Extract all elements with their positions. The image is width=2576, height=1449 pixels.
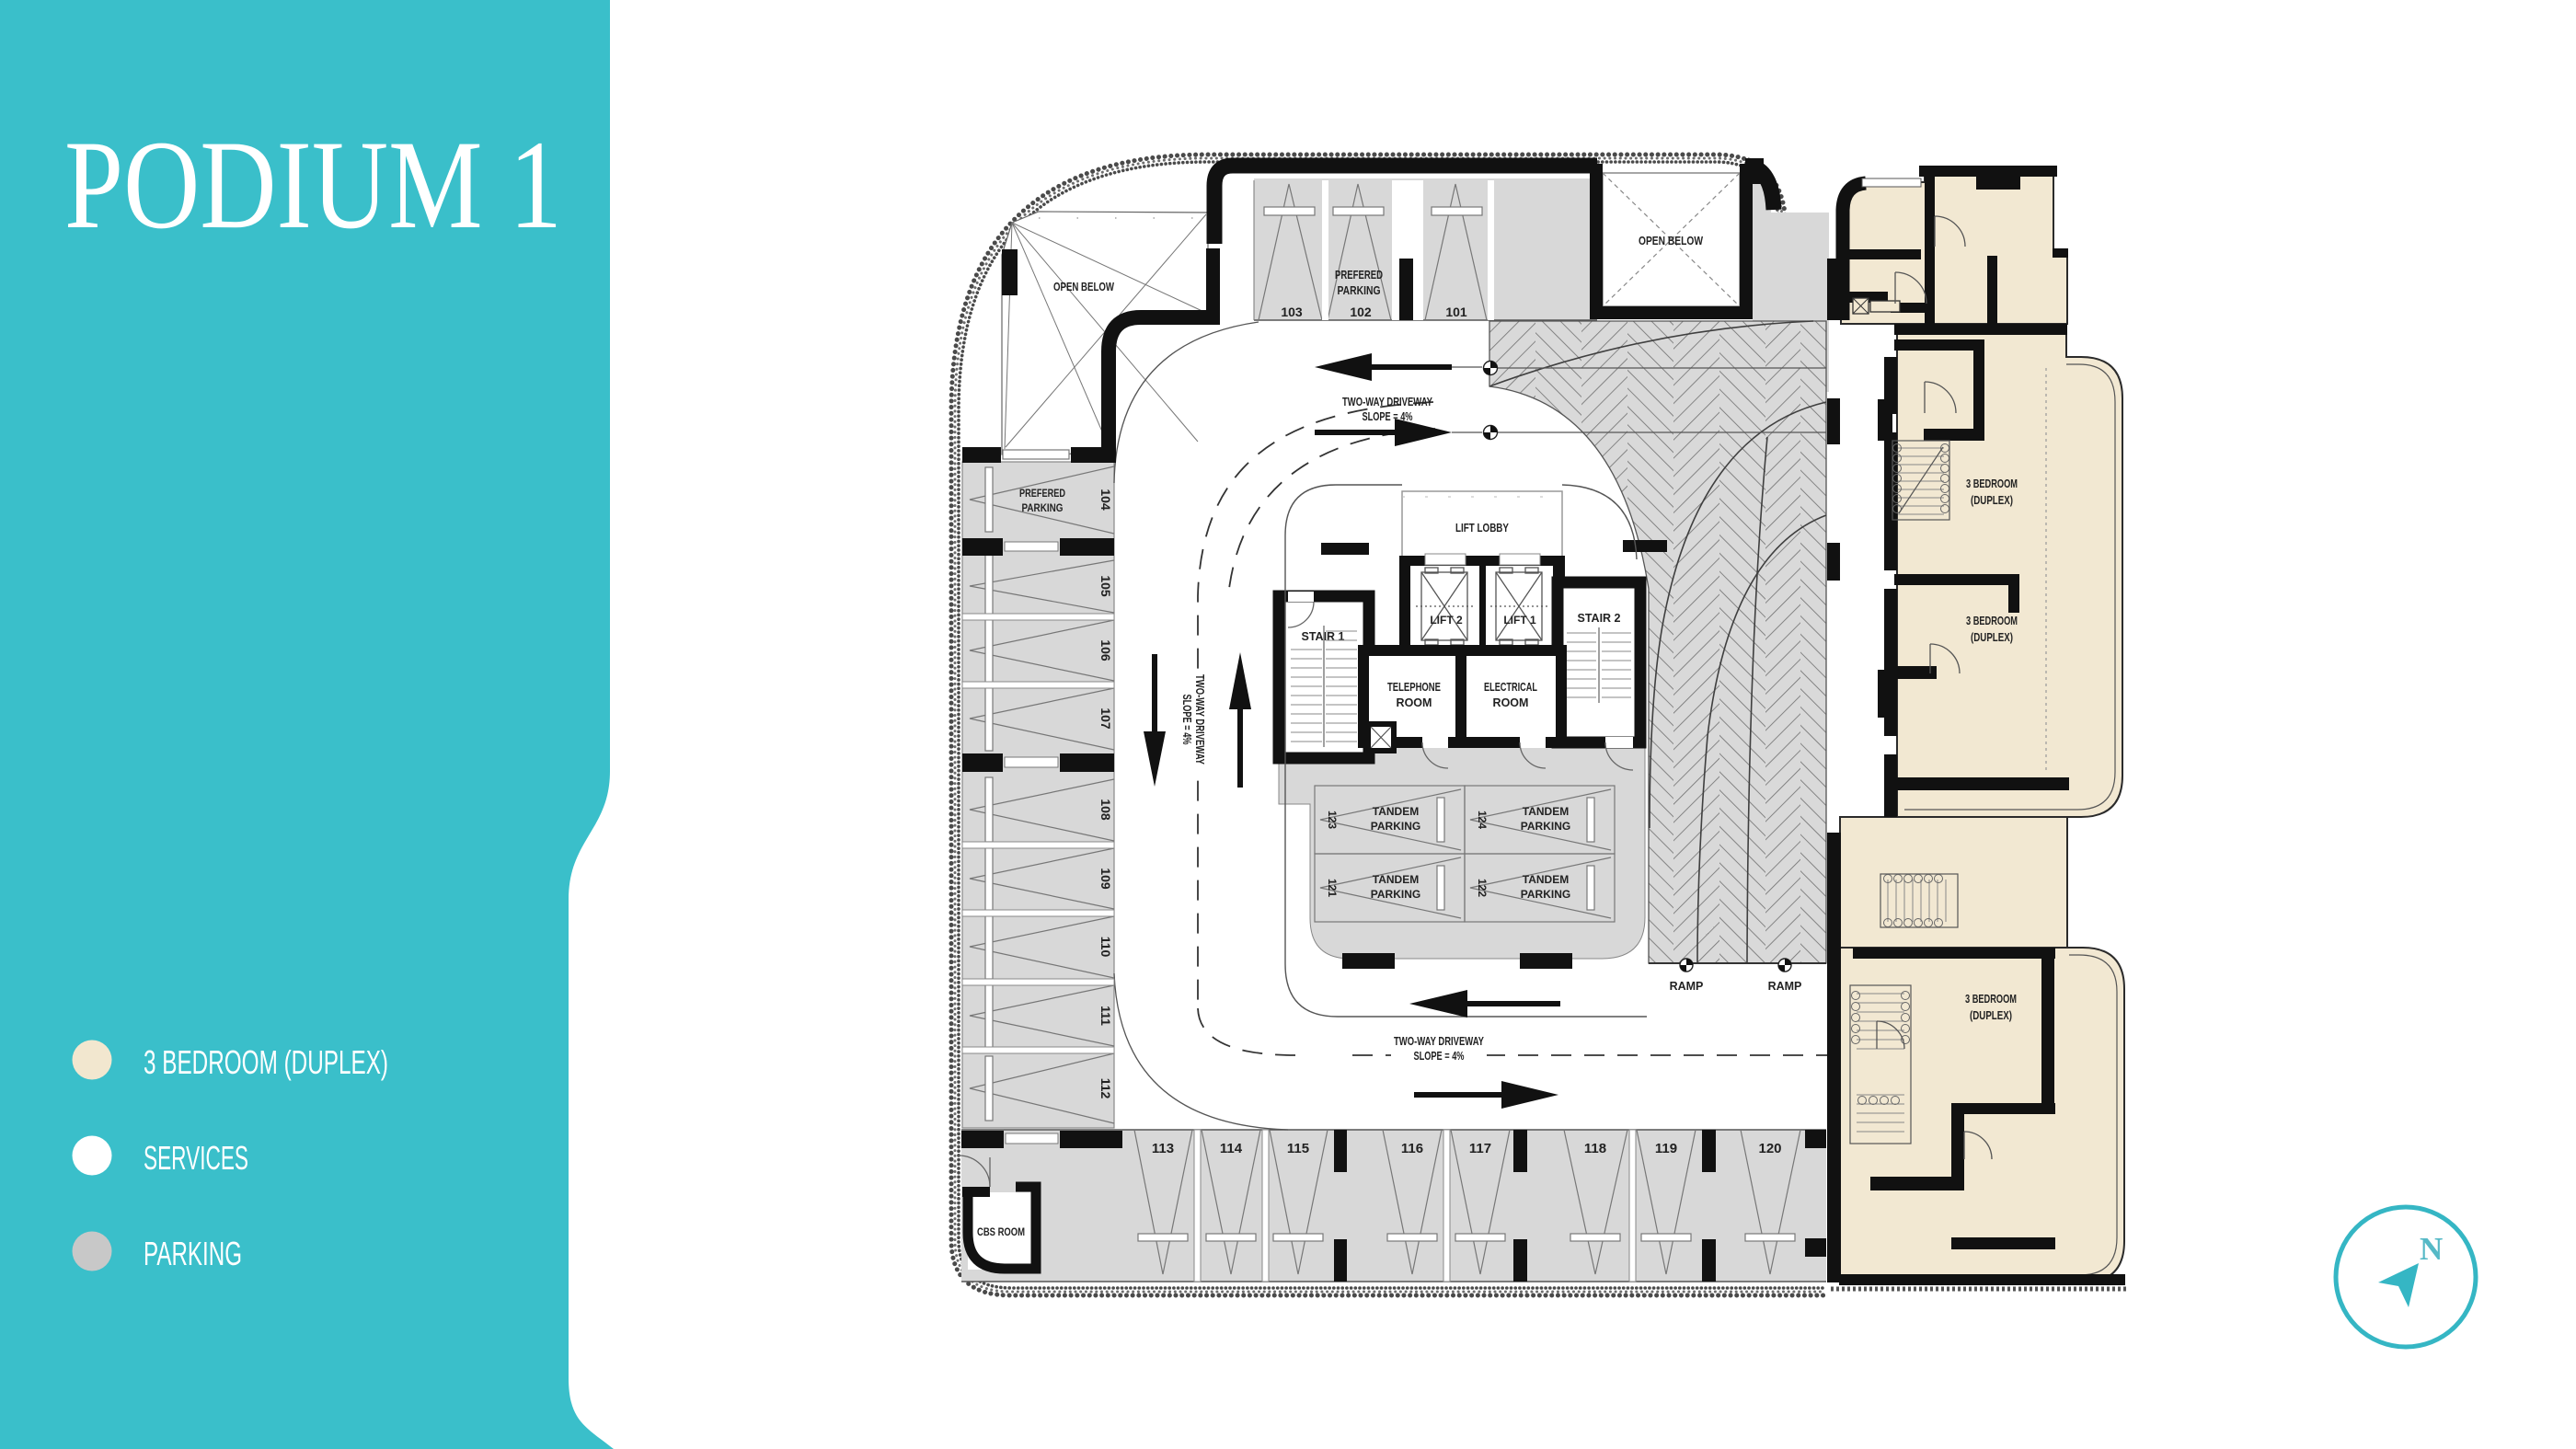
svg-text:SLOPE = 4%: SLOPE = 4% — [1180, 695, 1193, 745]
svg-text:3 BEDROOM (DUPLEX): 3 BEDROOM (DUPLEX) — [144, 1043, 388, 1081]
svg-text:106: 106 — [1098, 639, 1113, 661]
svg-text:123: 123 — [1326, 811, 1339, 829]
svg-text:SERVICES: SERVICES — [144, 1139, 248, 1177]
svg-text:LIFT 2: LIFT 2 — [1430, 614, 1463, 627]
svg-text:ROOM: ROOM — [1397, 696, 1432, 709]
svg-text:108: 108 — [1098, 799, 1113, 821]
svg-text:121: 121 — [1326, 879, 1339, 897]
svg-text:120: 120 — [1758, 1141, 1781, 1156]
svg-text:122: 122 — [1476, 879, 1489, 897]
svg-text:124: 124 — [1476, 811, 1489, 829]
svg-text:TELEPHONE: TELEPHONE — [1387, 681, 1441, 694]
svg-text:110: 110 — [1098, 937, 1113, 958]
svg-text:111: 111 — [1098, 1006, 1113, 1026]
svg-text:3 BEDROOM: 3 BEDROOM — [1965, 992, 2017, 1006]
svg-text:104: 104 — [1098, 489, 1113, 511]
svg-text:114: 114 — [1220, 1141, 1243, 1156]
svg-text:118: 118 — [1584, 1141, 1606, 1156]
svg-text:TANDEM: TANDEM — [1523, 805, 1569, 818]
svg-text:PARKING: PARKING — [1521, 888, 1570, 901]
svg-text:(DUPLEX): (DUPLEX) — [1970, 1008, 2012, 1022]
svg-text:3 BEDROOM: 3 BEDROOM — [1966, 614, 2018, 627]
svg-text:TWO-WAY DRIVEWAY: TWO-WAY DRIVEWAY — [1342, 396, 1432, 408]
svg-text:103: 103 — [1281, 305, 1303, 319]
svg-text:117: 117 — [1469, 1141, 1491, 1156]
svg-text:SLOPE = 4%: SLOPE = 4% — [1414, 1050, 1465, 1063]
svg-text:102: 102 — [1350, 305, 1372, 319]
svg-text:109: 109 — [1098, 868, 1113, 890]
svg-text:105: 105 — [1098, 575, 1113, 597]
svg-text:LIFT 1: LIFT 1 — [1503, 614, 1536, 627]
svg-text:113: 113 — [1152, 1141, 1174, 1156]
svg-text:115: 115 — [1287, 1141, 1309, 1156]
svg-text:107: 107 — [1098, 707, 1113, 730]
svg-text:RAMP: RAMP — [1670, 980, 1704, 993]
svg-text:101: 101 — [1445, 305, 1467, 319]
svg-text:PARKING: PARKING — [144, 1235, 242, 1272]
svg-text:ELECTRICAL: ELECTRICAL — [1484, 681, 1537, 694]
svg-text:LIFT LOBBY: LIFT LOBBY — [1455, 522, 1510, 535]
svg-text:STAIR 1: STAIR 1 — [1302, 630, 1345, 643]
svg-text:TANDEM: TANDEM — [1373, 805, 1419, 818]
svg-text:119: 119 — [1655, 1141, 1677, 1156]
svg-text:116: 116 — [1401, 1141, 1423, 1156]
svg-text:PODIUM 1: PODIUM 1 — [64, 114, 562, 255]
svg-text:PARKING: PARKING — [1338, 284, 1381, 297]
svg-text:TWO-WAY DRIVEWAY: TWO-WAY DRIVEWAY — [1394, 1035, 1484, 1048]
svg-text:RAMP: RAMP — [1768, 980, 1802, 993]
svg-text:CBS ROOM: CBS ROOM — [977, 1225, 1025, 1238]
svg-text:N: N — [2420, 1231, 2443, 1267]
svg-text:ROOM: ROOM — [1493, 696, 1529, 709]
svg-text:PREFERED: PREFERED — [1335, 269, 1383, 282]
svg-text:SLOPE = 4%: SLOPE = 4% — [1363, 410, 1413, 423]
svg-text:(DUPLEX): (DUPLEX) — [1971, 493, 2013, 507]
svg-text:PARKING: PARKING — [1022, 501, 1064, 514]
svg-text:TWO-WAY DRIVEWAY: TWO-WAY DRIVEWAY — [1193, 674, 1206, 765]
svg-text:PREFERED: PREFERED — [1019, 487, 1065, 500]
svg-text:OPEN BELOW: OPEN BELOW — [1053, 281, 1114, 293]
svg-text:PARKING: PARKING — [1371, 888, 1420, 901]
svg-text:PARKING: PARKING — [1371, 820, 1420, 833]
svg-text:(DUPLEX): (DUPLEX) — [1971, 630, 2013, 644]
svg-text:OPEN BELOW: OPEN BELOW — [1639, 235, 1703, 247]
svg-text:3 BEDROOM: 3 BEDROOM — [1966, 477, 2018, 490]
svg-text:112: 112 — [1098, 1078, 1113, 1099]
svg-text:TANDEM: TANDEM — [1373, 873, 1419, 886]
svg-text:TANDEM: TANDEM — [1523, 873, 1569, 886]
svg-text:PARKING: PARKING — [1521, 820, 1570, 833]
svg-text:STAIR 2: STAIR 2 — [1578, 612, 1621, 625]
